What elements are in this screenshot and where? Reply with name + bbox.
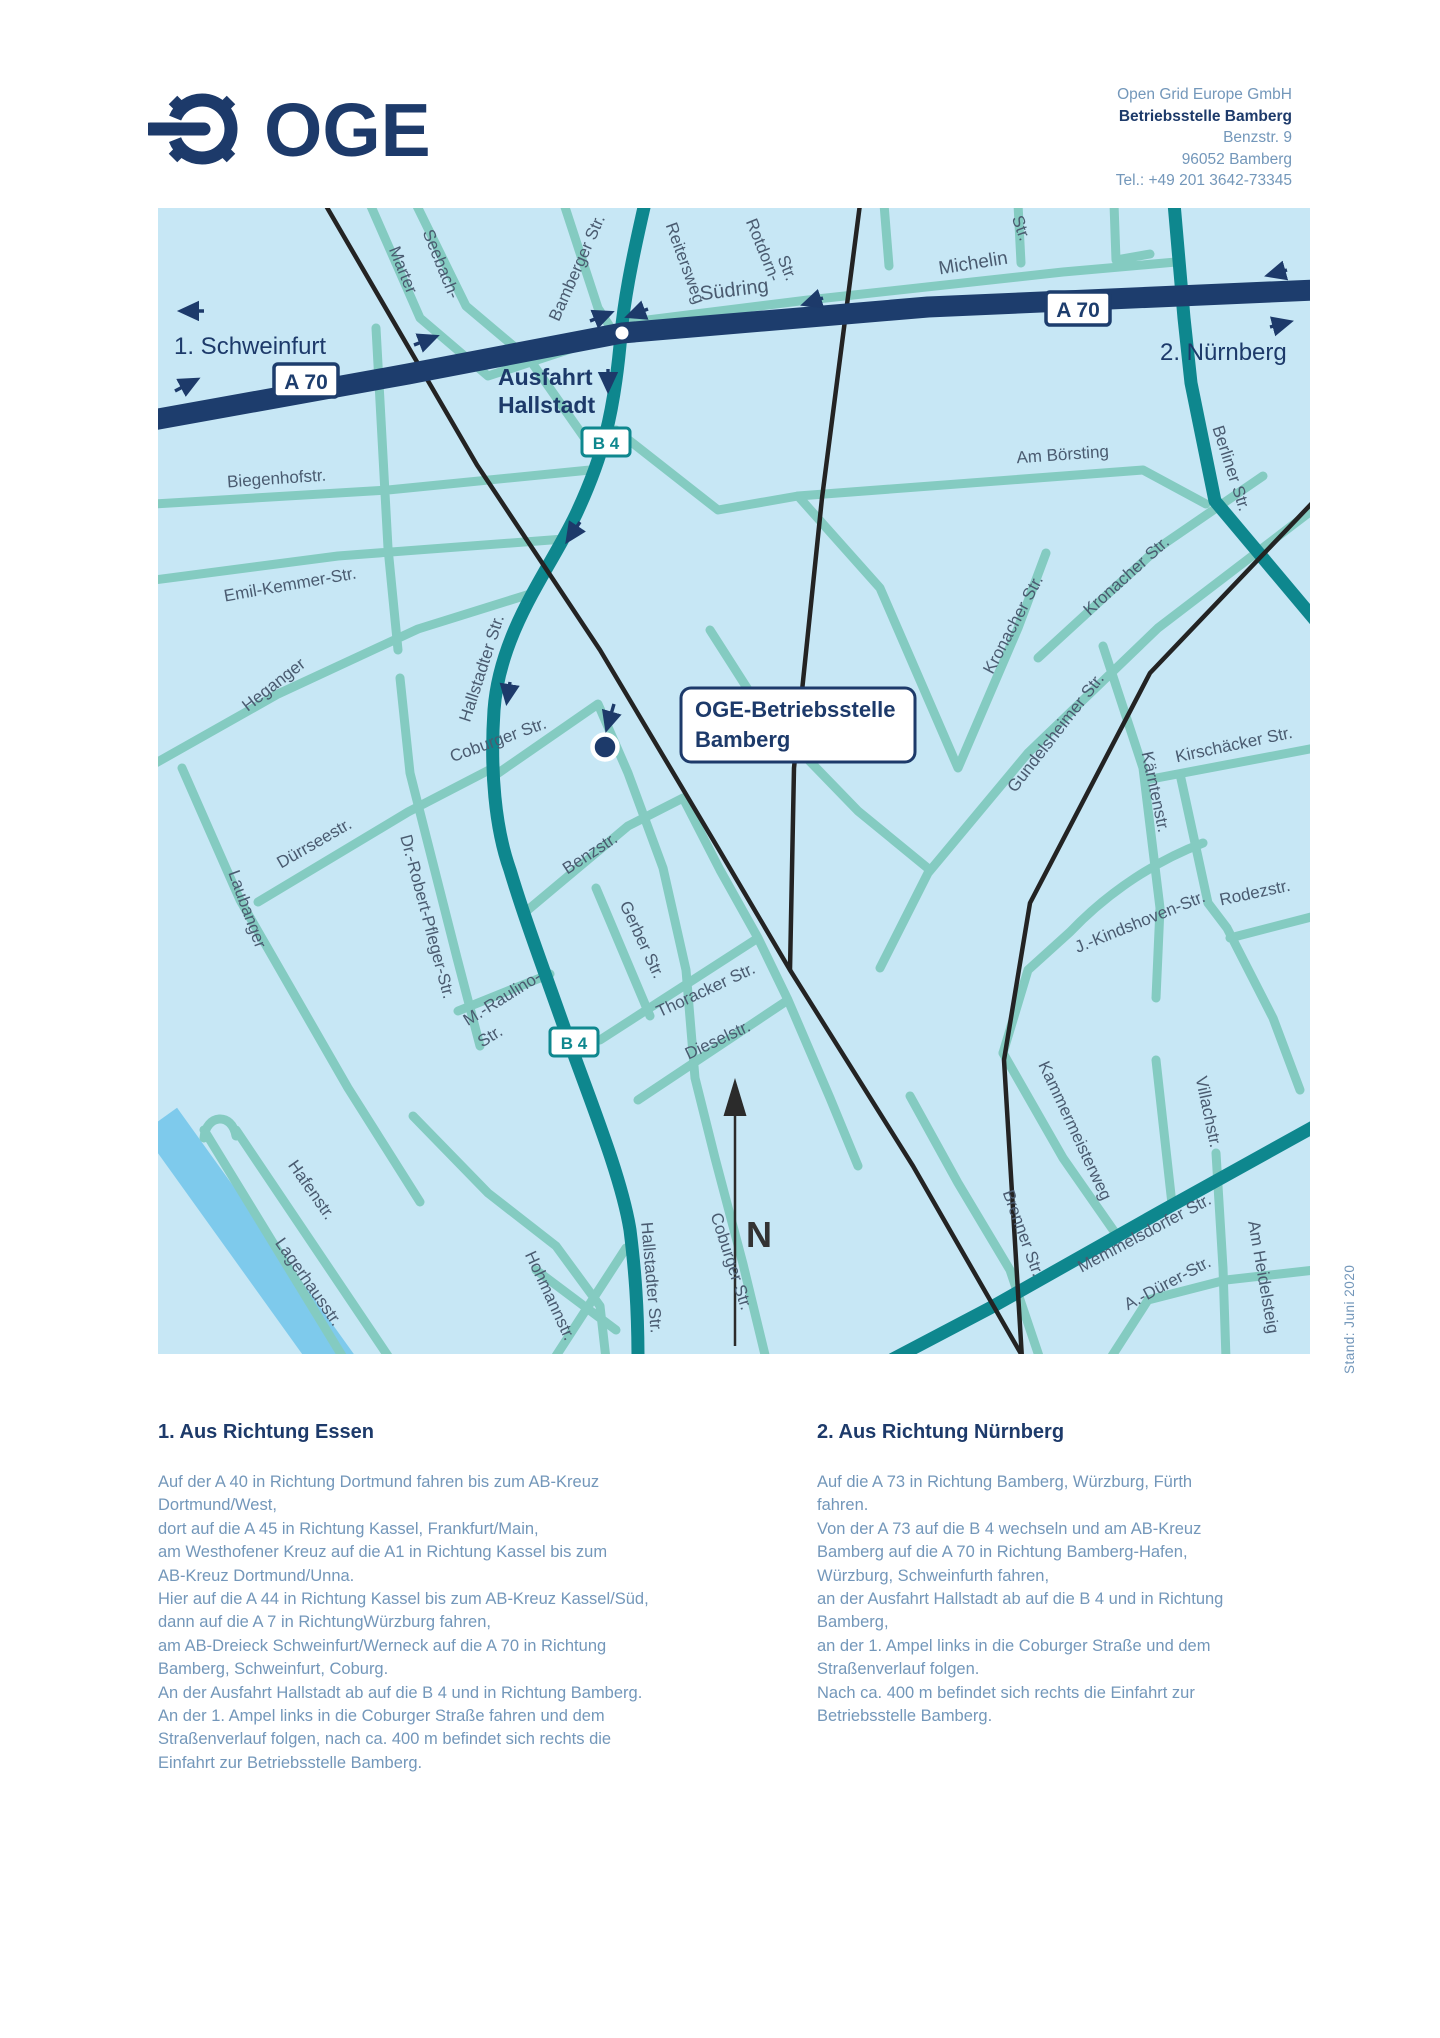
page: OGE Open Grid Europe GmbH Betriebsstelle… <box>0 0 1440 2038</box>
revision-date: Stand: Juni 2020 <box>1342 1234 1362 1374</box>
direction-arrow-icon <box>1269 270 1287 275</box>
svg-text:A 70: A 70 <box>284 371 328 394</box>
direction-arrow-icon <box>629 309 648 316</box>
street-label: Str. <box>1008 213 1035 243</box>
directions-essen-title: 1. Aus Richtung Essen <box>158 1421 758 1444</box>
street-label: Biegenhofstr. <box>226 466 326 492</box>
street-label: Rodezstr. <box>1218 876 1292 910</box>
junction-dot <box>616 327 629 340</box>
svg-text:OGE-Betriebsstelle: OGE-Betriebsstelle <box>695 697 896 722</box>
badge-b4-north: B 4 <box>582 428 630 456</box>
street-label: Seebach- <box>419 227 464 302</box>
oge-logo: OGE <box>148 72 448 177</box>
poi-marker <box>593 735 618 760</box>
svg-text:A 70: A 70 <box>1056 299 1100 322</box>
city-map: A 70 A 70 B 4 B 4 OGE-Betriebsstelle Bam… <box>158 208 1310 1354</box>
direction-schweinfurt: 1. Schweinfurt <box>174 333 326 360</box>
badge-b4-south: B 4 <box>550 1028 598 1056</box>
phone-number: Tel.: +49 201 3642-73345 <box>1116 170 1292 192</box>
badge-a70-west: A 70 <box>274 364 338 397</box>
direction-arrow-icon <box>1270 322 1289 327</box>
oge-logo-text: OGE <box>264 88 431 172</box>
street-label: Villachstr. <box>1192 1074 1226 1149</box>
exit-label-line2: Hallstadt <box>498 392 595 418</box>
directions-nuernberg-title: 2. Aus Richtung Nürnberg <box>817 1421 1317 1444</box>
street-label: Kronacher Str. <box>1080 532 1173 619</box>
city-address: 96052 Bamberg <box>1116 149 1292 171</box>
street-label: Benzstr. <box>559 829 621 878</box>
directions-essen-body: Auf der A 40 in Richtung Dortmund fahren… <box>158 1471 758 1775</box>
svg-text:B 4: B 4 <box>561 1034 588 1053</box>
street-label: J.-Kindshoven-Str. <box>1072 887 1208 957</box>
map-container: A 70 A 70 B 4 B 4 OGE-Betriebsstelle Bam… <box>158 208 1310 1354</box>
oge-logo-icon <box>150 100 231 158</box>
address-block: Open Grid Europe GmbH Betriebsstelle Bam… <box>1116 84 1292 192</box>
street-label: Am Börsting <box>1016 442 1110 467</box>
street-label: Rotdorn- <box>742 216 784 284</box>
street-label: Marter <box>385 244 421 297</box>
direction-nuernberg: 2. Nürnberg <box>1160 339 1287 366</box>
street-address: Benzstr. 9 <box>1116 127 1292 149</box>
company-name: Open Grid Europe GmbH <box>1116 84 1292 106</box>
street-label: M.-Raulino- <box>460 967 545 1030</box>
direction-arrow-icon <box>414 337 435 345</box>
street-label: Gerber Str. <box>616 898 668 981</box>
directions-nuernberg-body: Auf die A 73 in Richtung Bamberg, Würzbu… <box>817 1471 1317 1728</box>
svg-text:Bamberg: Bamberg <box>695 727 790 752</box>
directions-from-essen: 1. Aus Richtung Essen Auf der A 40 in Ri… <box>158 1421 758 1775</box>
street-label: Laubanger <box>224 868 270 951</box>
directions-from-nuernberg: 2. Aus Richtung Nürnberg Auf die A 73 in… <box>817 1421 1317 1728</box>
street-label: Gundelsheimer Str. <box>1003 669 1108 795</box>
badge-a70-east: A 70 <box>1046 292 1110 325</box>
poi-callout: OGE-Betriebsstelle Bamberg <box>681 688 915 762</box>
direction-arrow-icon <box>507 682 510 701</box>
north-label: N <box>746 1214 772 1255</box>
major-roads <box>493 208 1310 1354</box>
street-label: Südring <box>699 275 770 305</box>
exit-label-line1: Ausfahrt <box>498 364 593 390</box>
direction-arrow-icon <box>175 380 196 391</box>
site-name: Betriebsstelle Bamberg <box>1116 106 1292 128</box>
svg-text:B 4: B 4 <box>593 434 620 453</box>
